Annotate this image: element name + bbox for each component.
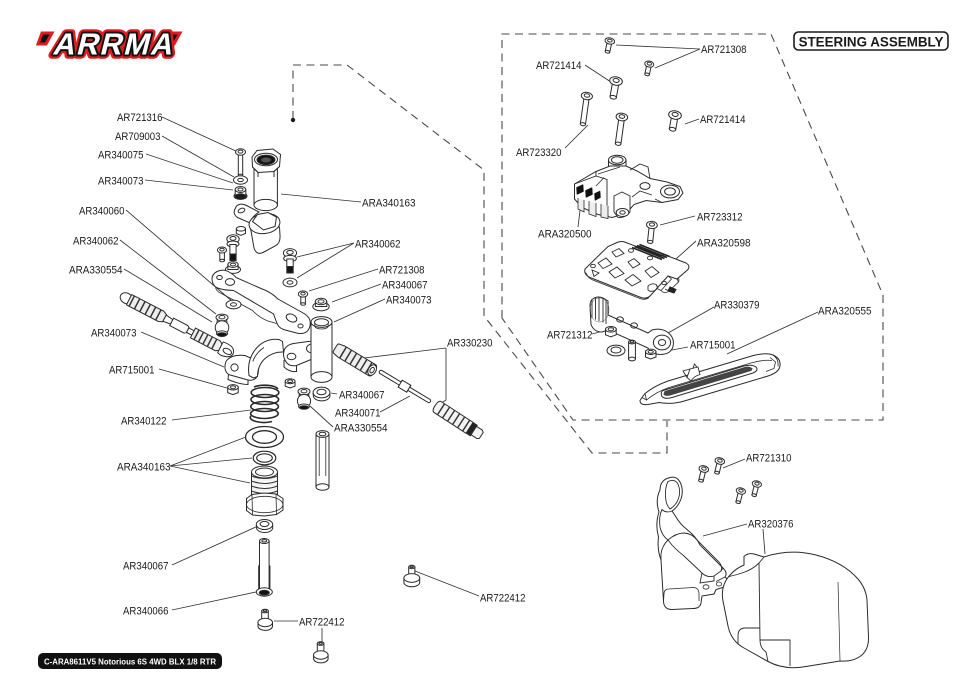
svg-text:AR330230: AR330230 [447, 338, 493, 350]
svg-text:AR715001: AR715001 [109, 365, 155, 377]
svg-text:AR721310: AR721310 [746, 453, 792, 465]
svg-text:ARRMA: ARRMA [50, 27, 180, 61]
svg-text:AR330379: AR330379 [714, 300, 760, 312]
svg-text:AR722412: AR722412 [480, 593, 526, 605]
svg-text:ARA320555: ARA320555 [818, 306, 872, 318]
svg-text:AR721414: AR721414 [536, 60, 582, 72]
svg-text:ARA340163: ARA340163 [362, 198, 416, 210]
svg-text:AR340062: AR340062 [73, 236, 119, 248]
svg-text:AR721308: AR721308 [701, 44, 747, 56]
svg-text:AR340073: AR340073 [386, 295, 432, 307]
svg-text:AR722412: AR722412 [299, 617, 345, 629]
svg-text:AR721308: AR721308 [379, 265, 425, 277]
svg-text:AR709003: AR709003 [115, 131, 161, 143]
svg-text:AR340062: AR340062 [355, 239, 401, 251]
svg-text:ARA320500: ARA320500 [538, 229, 592, 241]
svg-text:AR723312: AR723312 [697, 212, 743, 224]
svg-text:AR340066: AR340066 [123, 606, 169, 618]
svg-text:AR721414: AR721414 [700, 114, 746, 126]
svg-text:ARA330554: ARA330554 [69, 265, 123, 277]
svg-text:AR340067: AR340067 [339, 390, 385, 402]
svg-text:C-ARA8611V5 Notorious 6S 4WD B: C-ARA8611V5 Notorious 6S 4WD BLX 1/8 RTR [44, 657, 216, 666]
svg-text:AR340071: AR340071 [335, 408, 381, 420]
svg-text:AR340122: AR340122 [121, 416, 167, 428]
svg-text:ARA340163: ARA340163 [117, 462, 171, 474]
svg-text:ARA330554: ARA330554 [334, 423, 388, 435]
svg-text:AR340067: AR340067 [123, 561, 169, 573]
svg-text:AR721312: AR721312 [547, 330, 593, 342]
svg-text:AR723320: AR723320 [516, 147, 562, 159]
svg-text:ARA320598: ARA320598 [697, 238, 751, 250]
svg-text:AR340067: AR340067 [382, 280, 428, 292]
svg-text:STEERING ASSEMBLY: STEERING ASSEMBLY [799, 35, 944, 50]
svg-text:AR340073: AR340073 [98, 176, 144, 188]
svg-text:AR340075: AR340075 [98, 150, 144, 162]
svg-text:AR340060: AR340060 [79, 206, 125, 218]
svg-text:AR721316: AR721316 [117, 112, 163, 124]
svg-text:AR320376: AR320376 [748, 519, 794, 531]
svg-text:AR715001: AR715001 [690, 340, 736, 352]
svg-text:AR340073: AR340073 [91, 328, 137, 340]
